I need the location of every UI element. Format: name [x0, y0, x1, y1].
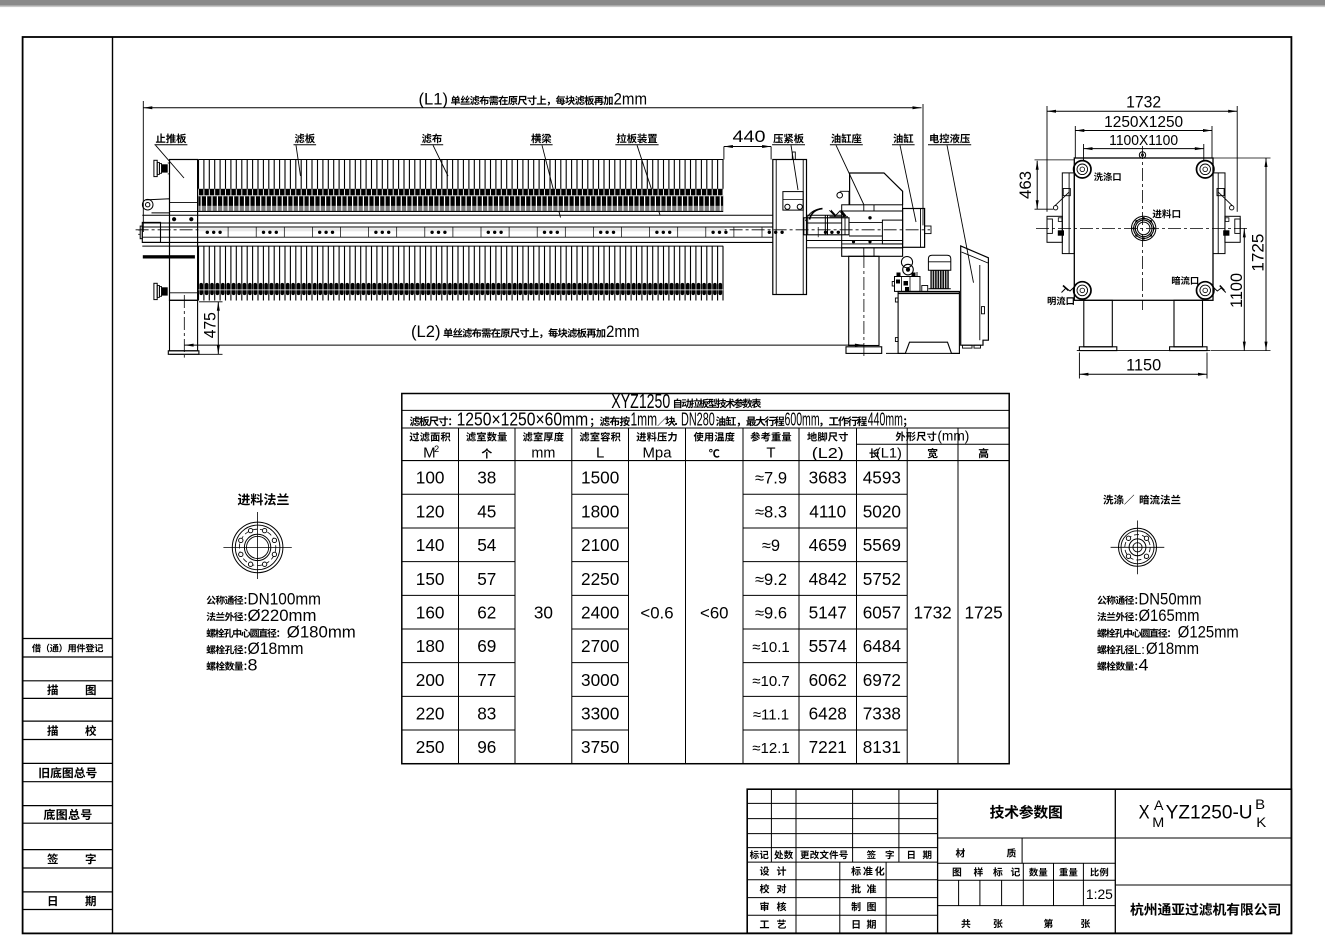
svg-text:1100X1100: 1100X1100: [1109, 132, 1178, 149]
svg-text:1725: 1725: [964, 602, 1002, 622]
svg-text:120: 120: [416, 501, 445, 521]
svg-text:8131: 8131: [863, 737, 901, 757]
svg-text:≈11.1: ≈11.1: [753, 707, 789, 724]
svg-text:100: 100: [416, 468, 445, 488]
svg-text:83: 83: [477, 704, 496, 724]
svg-text:160: 160: [416, 602, 445, 622]
svg-text:1150: 1150: [1126, 356, 1161, 374]
svg-text:1100: 1100: [1228, 273, 1246, 308]
svg-text:3300: 3300: [581, 704, 619, 724]
svg-text:mm: mm: [531, 445, 555, 462]
svg-text:1250×1250×60mm: 1250×1250×60mm: [457, 410, 589, 430]
svg-text:≈8.3: ≈8.3: [755, 503, 787, 521]
svg-text:6484: 6484: [863, 636, 902, 656]
svg-text:≈9: ≈9: [762, 537, 780, 555]
svg-text:(L2): (L2): [411, 323, 441, 341]
svg-text:2100: 2100: [581, 535, 619, 555]
svg-text:1250X1250: 1250X1250: [1104, 114, 1183, 131]
svg-text:2400: 2400: [581, 602, 619, 622]
svg-text:3750: 3750: [581, 737, 619, 757]
svg-text:6972: 6972: [863, 670, 901, 690]
svg-text:2700: 2700: [581, 636, 619, 656]
svg-text:(L2): (L2): [812, 445, 844, 462]
svg-text:≈12.1: ≈12.1: [752, 740, 789, 757]
svg-text:6428: 6428: [809, 704, 847, 724]
svg-text:4659: 4659: [809, 535, 847, 555]
svg-text:69: 69: [477, 636, 496, 656]
svg-text:1500: 1500: [581, 468, 619, 488]
svg-text:4842: 4842: [809, 569, 847, 589]
svg-text:(mm): (mm): [937, 428, 969, 444]
svg-text:L: L: [596, 445, 604, 462]
svg-text:1800: 1800: [581, 501, 619, 521]
svg-text:7338: 7338: [863, 704, 901, 724]
svg-text:≈7.9: ≈7.9: [755, 470, 787, 488]
svg-text:Ø18mm: Ø18mm: [1146, 639, 1199, 658]
svg-text:4: 4: [1139, 656, 1149, 675]
svg-text:62: 62: [477, 602, 496, 622]
svg-text:1:25: 1:25: [1086, 887, 1113, 902]
svg-text:475: 475: [202, 312, 220, 338]
svg-text:96: 96: [477, 737, 496, 757]
svg-text:2mm: 2mm: [606, 323, 640, 341]
svg-text:38: 38: [477, 468, 496, 488]
svg-text:5752: 5752: [863, 569, 901, 589]
svg-text:440: 440: [733, 128, 766, 146]
svg-text:(L1): (L1): [876, 445, 902, 461]
svg-text:3000: 3000: [581, 670, 619, 690]
svg-text:B: B: [1255, 796, 1265, 812]
svg-text:T: T: [766, 445, 775, 462]
svg-text:440mm: 440mm: [868, 410, 903, 430]
svg-text:(L1): (L1): [419, 91, 449, 109]
svg-text:5569: 5569: [863, 535, 901, 555]
svg-text:150: 150: [416, 569, 445, 589]
svg-text:2: 2: [434, 444, 439, 454]
svg-text:X: X: [1139, 803, 1150, 824]
svg-text:≈9.6: ≈9.6: [755, 604, 787, 622]
svg-text:≈10.7: ≈10.7: [752, 673, 789, 690]
svg-text:54: 54: [477, 535, 497, 555]
svg-text:77: 77: [477, 670, 496, 690]
svg-text:6062: 6062: [809, 670, 847, 690]
svg-text:140: 140: [416, 535, 445, 555]
svg-text:6057: 6057: [863, 602, 901, 622]
svg-text:5020: 5020: [863, 501, 901, 521]
svg-text:57: 57: [477, 569, 496, 589]
svg-text:5574: 5574: [809, 636, 848, 656]
svg-text:2mm: 2mm: [614, 91, 648, 109]
svg-text:4110: 4110: [809, 501, 846, 521]
svg-text:Mpa: Mpa: [643, 445, 673, 462]
svg-text:<0.6: <0.6: [640, 603, 673, 622]
svg-text:463: 463: [1017, 171, 1035, 199]
svg-text:7221: 7221: [809, 737, 847, 757]
svg-text:M: M: [1152, 814, 1164, 830]
svg-text:600mm: 600mm: [785, 410, 820, 430]
svg-text:1732: 1732: [913, 602, 951, 622]
svg-text:1725: 1725: [1250, 234, 1268, 272]
svg-text:200: 200: [416, 670, 445, 690]
svg-text:220: 220: [416, 704, 445, 724]
svg-text:3683: 3683: [809, 468, 847, 488]
svg-text:30: 30: [534, 602, 553, 622]
svg-text:≈10.1: ≈10.1: [752, 639, 789, 656]
svg-text:1732: 1732: [1126, 93, 1161, 111]
svg-text:YZ1250-U: YZ1250-U: [1166, 803, 1253, 824]
svg-text:≈9.2: ≈9.2: [755, 571, 787, 589]
svg-text:K: K: [1256, 814, 1267, 830]
svg-text:180: 180: [416, 636, 445, 656]
svg-text:4593: 4593: [863, 468, 901, 488]
svg-text:45: 45: [477, 501, 496, 521]
svg-text:1mm: 1mm: [631, 410, 658, 430]
svg-text:250: 250: [416, 737, 445, 757]
svg-text:A: A: [1154, 797, 1164, 813]
svg-text:2250: 2250: [581, 569, 619, 589]
svg-text:8: 8: [248, 656, 258, 675]
svg-text:5147: 5147: [809, 602, 847, 622]
svg-text:DN280: DN280: [681, 410, 715, 430]
svg-text:<60: <60: [700, 603, 728, 622]
